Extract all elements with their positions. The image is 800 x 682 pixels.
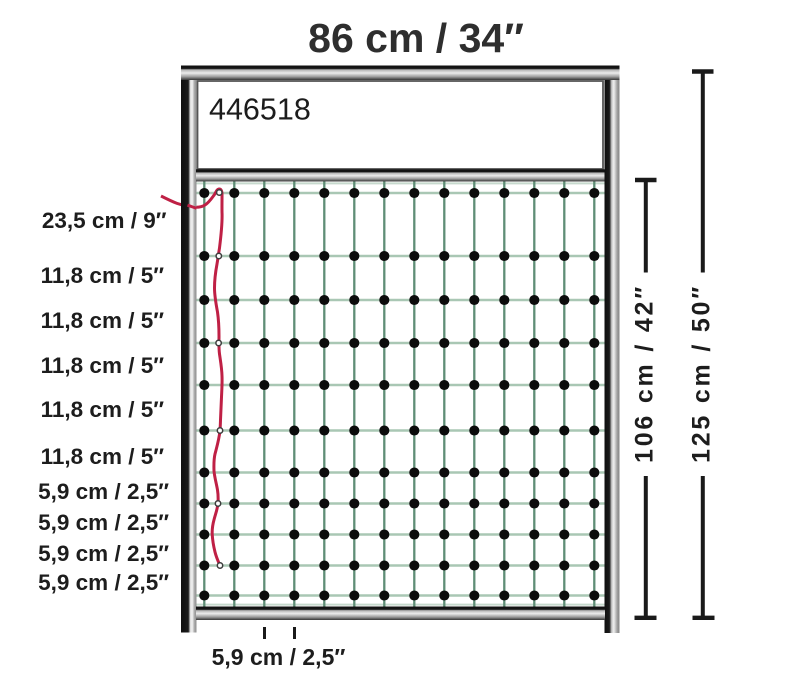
- svg-text:5,9 cm / 2,5″: 5,9 cm / 2,5″: [38, 541, 169, 566]
- svg-text:125 cm / 50″: 125 cm / 50″: [688, 284, 716, 463]
- svg-text:5,9 cm / 2,5″: 5,9 cm / 2,5″: [38, 510, 169, 535]
- svg-text:5,9 cm / 2,5″: 5,9 cm / 2,5″: [38, 570, 169, 595]
- svg-text:5,9 cm / 2,5″: 5,9 cm / 2,5″: [38, 479, 169, 504]
- svg-text:11,8 cm / 5″: 11,8 cm / 5″: [41, 353, 165, 378]
- svg-text:11,8 cm / 5″: 11,8 cm / 5″: [41, 444, 165, 469]
- svg-text:5,9 cm / 2,5″: 5,9 cm / 2,5″: [212, 644, 346, 670]
- svg-text:11,8 cm / 5″: 11,8 cm / 5″: [41, 397, 165, 422]
- svg-text:86 cm / 34″: 86 cm / 34″: [308, 15, 524, 61]
- svg-text:446518: 446518: [209, 93, 311, 127]
- svg-text:11,8 cm / 5″: 11,8 cm / 5″: [41, 308, 165, 333]
- svg-text:106 cm / 42″: 106 cm / 42″: [631, 284, 659, 463]
- svg-text:23,5 cm / 9″: 23,5 cm / 9″: [42, 208, 167, 233]
- svg-text:11,8 cm / 5″: 11,8 cm / 5″: [41, 263, 165, 288]
